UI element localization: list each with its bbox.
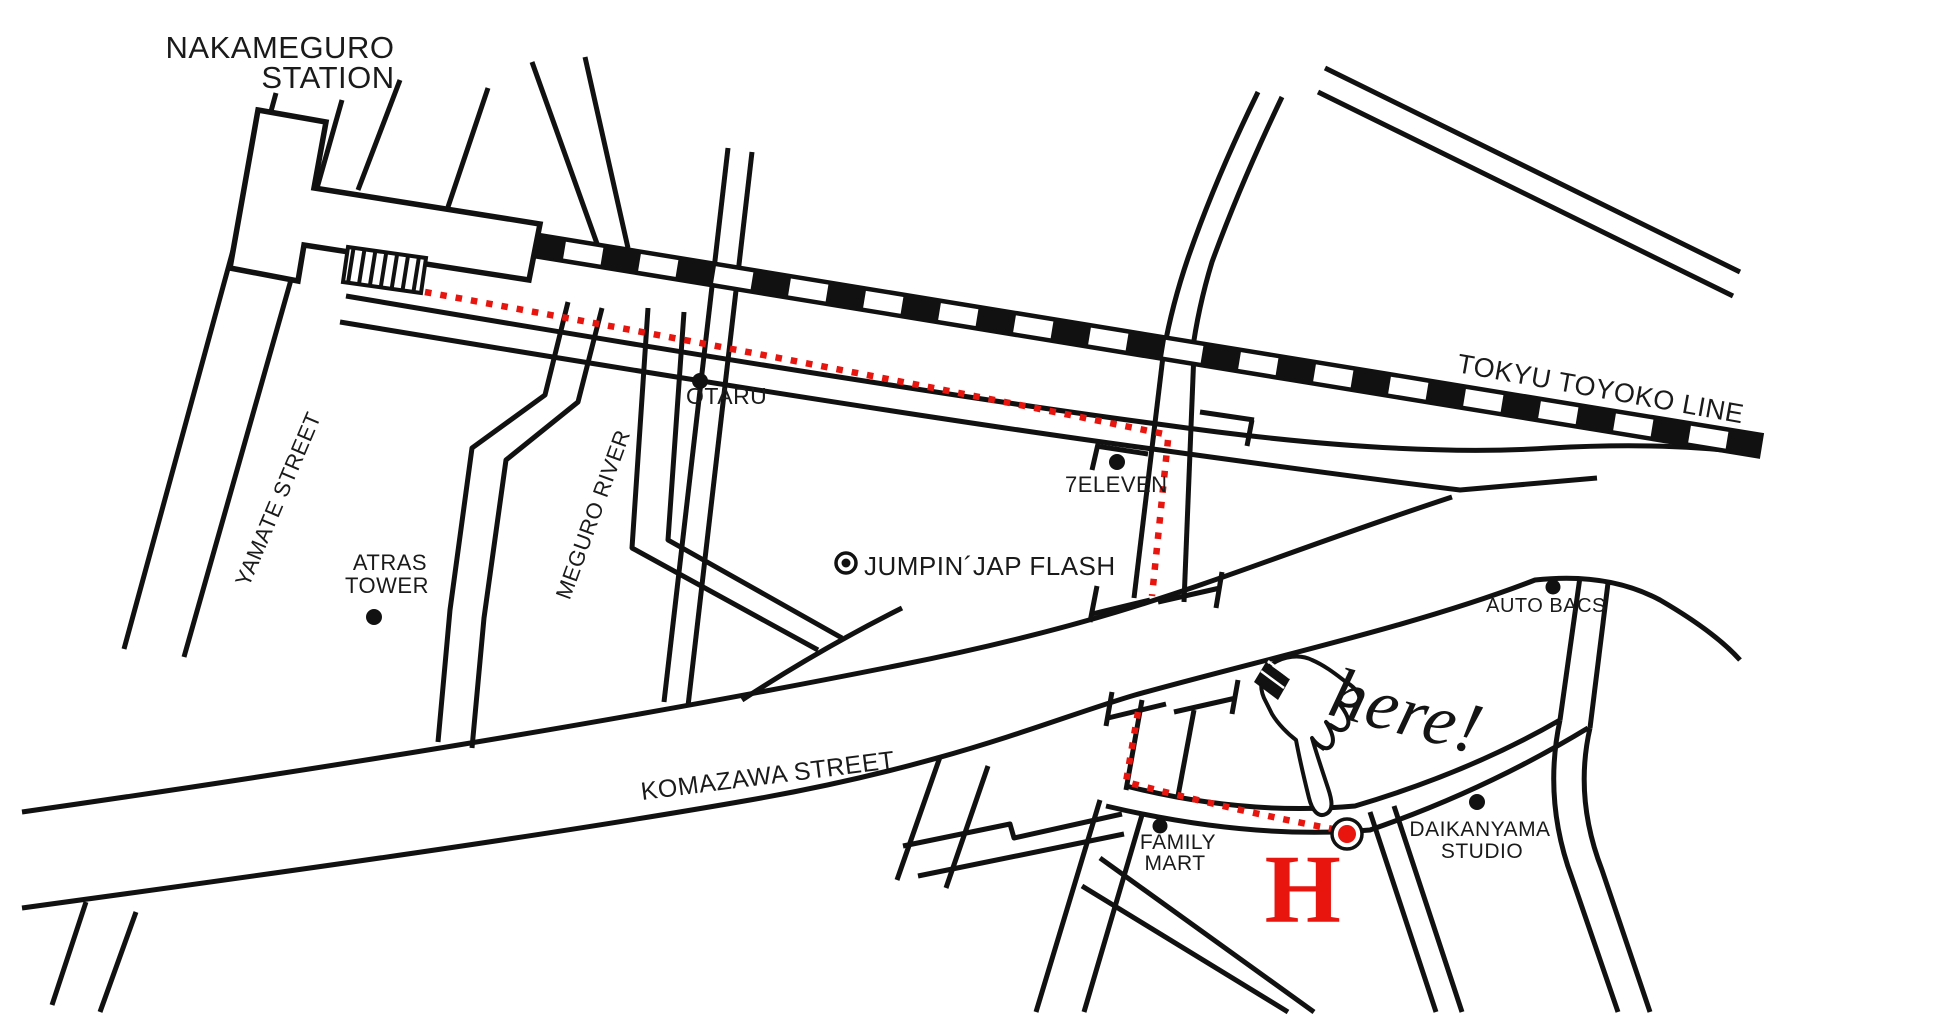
atras-tower-label-line1: ATRAS (353, 550, 427, 575)
seven-eleven-street-upper-a (1164, 92, 1258, 350)
route-segment-down-street (1152, 440, 1168, 596)
family-mart-south-street-b (1082, 886, 1288, 1012)
family-mart-label-line1: FAMILY (1140, 831, 1216, 854)
south-lane-connector-b (918, 834, 1124, 876)
station-label-line2: STATION (261, 60, 394, 95)
railway-tokyu-toyoko (527, 244, 1762, 446)
yamate-street-south-west-edge (52, 902, 86, 1005)
southeast-street-b (1584, 728, 1650, 1012)
northeast-road-b (1318, 92, 1733, 296)
daikanyama-studio-label-line2: STUDIO (1441, 840, 1523, 863)
auto-bacs-dot (1546, 580, 1561, 595)
river-east-street-b (668, 312, 842, 638)
komazawa-street-upper-edge (22, 497, 1452, 812)
atras-tower-dot (366, 609, 382, 625)
south-lane-a (897, 757, 940, 880)
atras-tower-label-line2: TOWER (345, 573, 429, 598)
family-mart-label-line2: MART (1144, 852, 1205, 875)
daikanyama-west-street-a (1370, 812, 1436, 1012)
jumpin-jap-flash-label: JUMPIN´JAP FLASH (864, 551, 1116, 581)
rail-cross-street-b (585, 57, 628, 248)
meguro-river-label: MEGURO RIVER (551, 426, 635, 602)
otaru-label: OTARU (686, 383, 767, 409)
daikanyama-studio-dot (1469, 794, 1485, 810)
northeast-road-a (1325, 68, 1740, 272)
nakameguro-station-building (230, 110, 540, 293)
river-west-street-a (438, 302, 568, 742)
seven-eleven-label: 7ELEVEN (1065, 472, 1168, 497)
jumpin-jap-flash-dot (842, 559, 851, 568)
destination-h-marker: H (1265, 836, 1342, 944)
station-north-street-a (358, 80, 400, 190)
poi-markers (366, 373, 1561, 849)
seven-eleven-street-lower-b (1184, 352, 1194, 602)
seven-eleven-dot (1109, 454, 1125, 470)
station-north-street-b (448, 88, 488, 207)
map-canvas: NAKAMEGURO STATION YAMATE STREET MEGURO … (0, 0, 1950, 1022)
family-mart-west-street-b (1084, 815, 1142, 1012)
crossing-street-south-b (1178, 710, 1194, 796)
yamate-street-south-east-edge (100, 912, 136, 1012)
daikanyama-studio-label-line1: DAIKANYAMA (1409, 818, 1550, 841)
auto-bacs-label: AUTO BACS (1486, 595, 1606, 617)
access-map: NAKAMEGURO STATION YAMATE STREET MEGURO … (0, 0, 1950, 1022)
here-callout-text: here! (1322, 652, 1492, 769)
route-segment-along-railway (425, 292, 1164, 434)
